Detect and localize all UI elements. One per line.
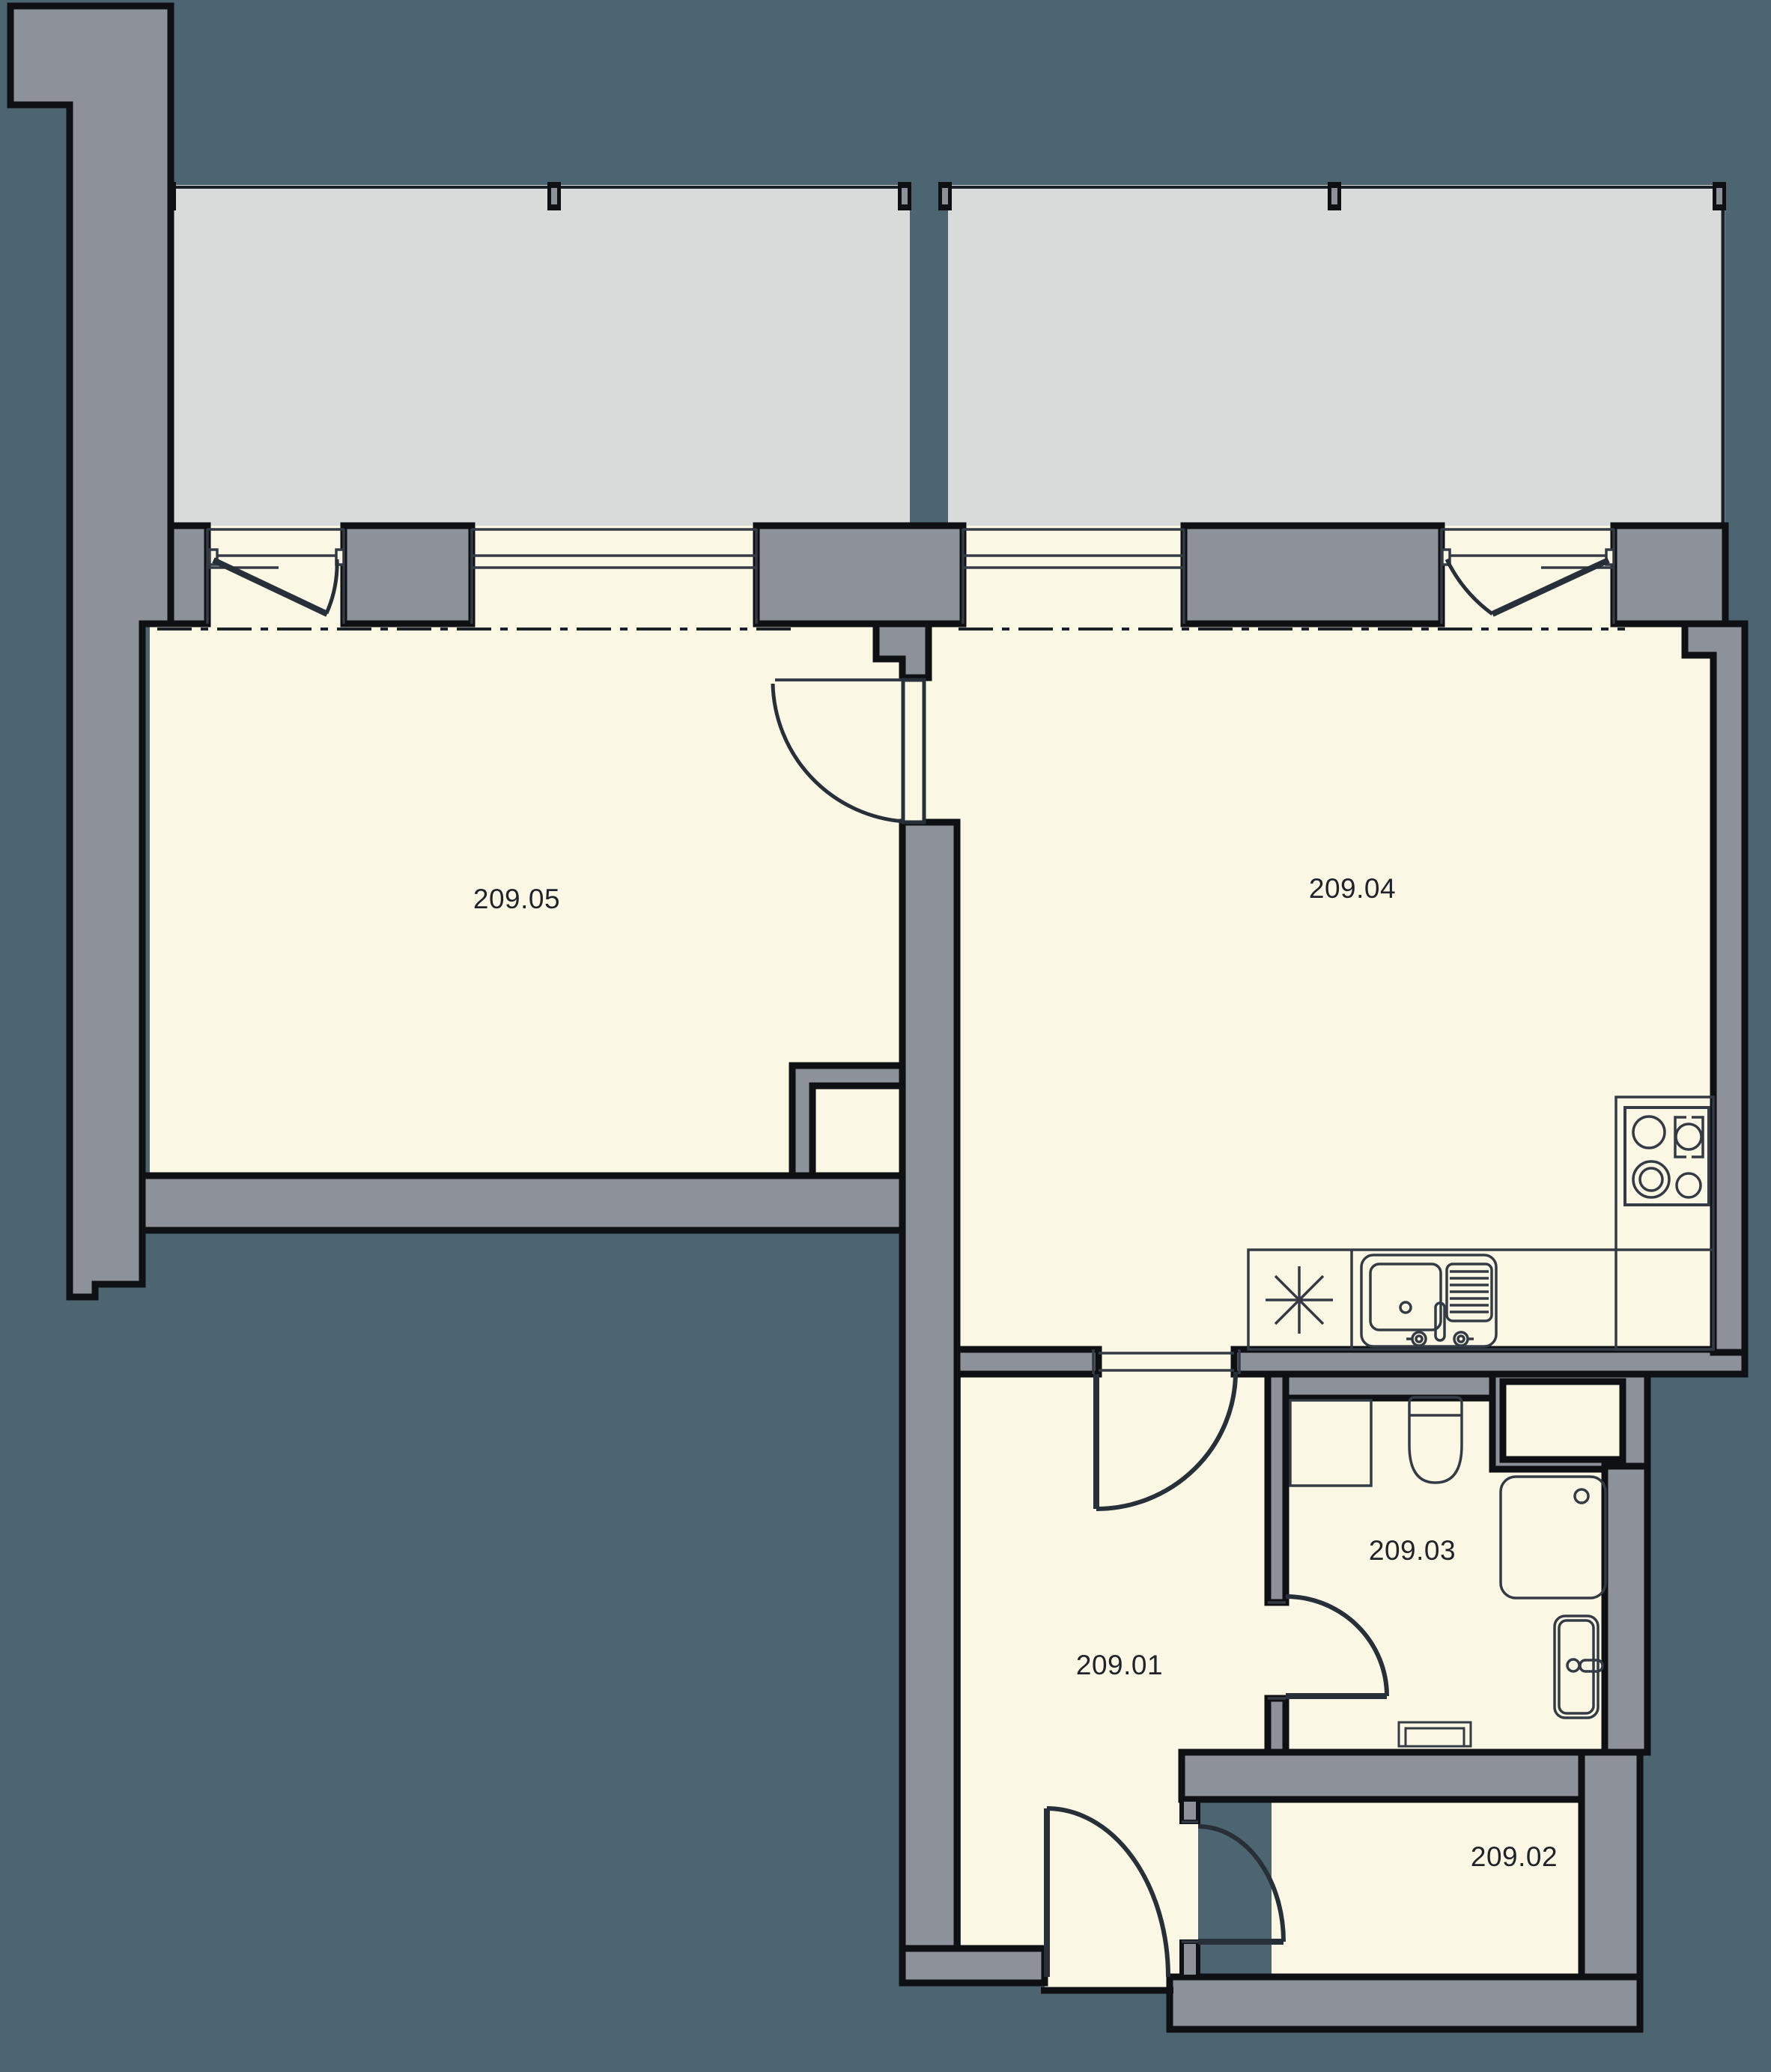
passage-hall-storage bbox=[1182, 1822, 1198, 1942]
room-label-209-03: 209.03 bbox=[1369, 1535, 1456, 1566]
room-209-02-floor bbox=[1272, 1799, 1582, 1977]
dishwasher-symbol-icon bbox=[1266, 1266, 1333, 1334]
floor-plan-drawing: 209.05 209.04 209.03 209.01 209.02 bbox=[0, 0, 1771, 2072]
wall-pier bbox=[1184, 526, 1442, 624]
floor-plan-canvas: 209.05 209.04 209.03 209.01 209.02 bbox=[0, 0, 1771, 2072]
wall-pier bbox=[756, 526, 963, 624]
shaft-niche bbox=[1503, 1382, 1623, 1459]
wall-right-storage bbox=[1582, 1752, 1640, 1977]
balconies bbox=[174, 185, 1725, 529]
wall-hall-bath-lower bbox=[1268, 1698, 1286, 1752]
wall-pier bbox=[171, 526, 207, 624]
wall-bath-top bbox=[1286, 1374, 1492, 1398]
room-209-04-floor bbox=[929, 624, 1713, 1349]
wall-bath-storage bbox=[1182, 1752, 1605, 1799]
wall-divider bbox=[902, 822, 957, 1979]
balcony-left bbox=[174, 185, 910, 529]
wall-right-bath bbox=[1605, 1466, 1647, 1752]
room-label-209-05: 209.05 bbox=[473, 884, 560, 914]
wall-jamb bbox=[1182, 1799, 1198, 1822]
room-label-209-02: 209.02 bbox=[1471, 1841, 1558, 1872]
wall-bedroom-bottom bbox=[142, 1176, 902, 1230]
wall-bottom-left bbox=[902, 1948, 1045, 1983]
wall-pier bbox=[344, 526, 472, 624]
wall-pier bbox=[1614, 526, 1725, 624]
wall-kitchen-hall-right bbox=[1234, 1349, 1745, 1374]
window-opening-bedroom bbox=[472, 526, 756, 624]
balcony-door-opening-right bbox=[1442, 526, 1614, 624]
wall-hall-bath bbox=[1268, 1374, 1286, 1602]
wall-jamb bbox=[1182, 1942, 1198, 1977]
window-opening-living bbox=[963, 526, 1184, 624]
wall-bottom-right bbox=[1170, 1977, 1640, 2029]
niche-floor bbox=[812, 1086, 902, 1176]
wall-kitchen-hall-left bbox=[957, 1349, 1099, 1374]
room-label-209-01: 209.01 bbox=[1076, 1650, 1163, 1680]
passage-hall-bath bbox=[1268, 1602, 1286, 1698]
balcony-right bbox=[948, 185, 1725, 529]
room-label-209-04: 209.04 bbox=[1309, 873, 1396, 904]
